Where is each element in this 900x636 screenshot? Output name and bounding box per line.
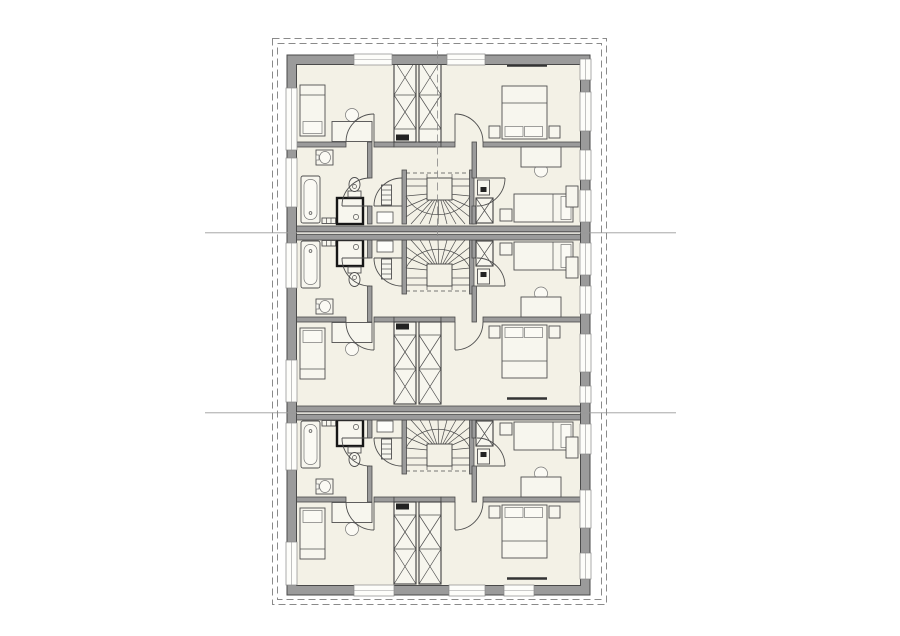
shaft-wall: [394, 142, 441, 147]
sink-tap: [316, 484, 319, 489]
wardrobe: [566, 437, 578, 458]
bathtub-inner: [304, 425, 317, 465]
corridor-wall: [374, 497, 394, 502]
pillow: [505, 328, 523, 338]
shower: [337, 420, 363, 446]
stair-core: [427, 264, 452, 286]
installation-shaft: [394, 322, 416, 404]
shaft-wall: [394, 317, 441, 322]
sink-basin: [320, 301, 331, 313]
corridor-wall: [374, 317, 394, 322]
party-wall: [287, 415, 590, 421]
installation-shaft: [419, 322, 441, 404]
floor-plan-page: [0, 0, 900, 636]
pillow: [505, 508, 523, 518]
bathroom-wall: [368, 466, 373, 502]
corridor-wall: [296, 497, 346, 502]
pillow: [525, 127, 543, 137]
corridor-wall: [441, 497, 455, 502]
shower: [337, 198, 363, 224]
sink-basin: [320, 481, 331, 493]
bathroom-wall: [368, 286, 373, 322]
corridor-wall: [483, 142, 581, 147]
shaft-vent: [396, 324, 409, 330]
stair-wall: [402, 420, 407, 474]
shaft-vent: [396, 135, 409, 141]
corridor-wall: [441, 142, 455, 147]
corridor-wall: [483, 497, 581, 502]
units-layer: [296, 60, 581, 584]
nightstand: [500, 423, 512, 435]
corridor-wall: [296, 317, 346, 322]
pillow: [303, 511, 322, 523]
bedroom-wall: [472, 466, 477, 502]
desk: [521, 297, 561, 317]
wardrobe: [566, 257, 578, 278]
nightstand: [489, 126, 500, 138]
installation-shaft: [394, 60, 416, 142]
pillow: [505, 127, 523, 137]
sink-basin: [320, 152, 331, 164]
stair-wall: [402, 240, 407, 294]
nightstand: [500, 243, 512, 255]
nightstand: [549, 326, 560, 338]
bathtub-inner: [304, 180, 317, 220]
party-wall: [287, 226, 590, 232]
pillow: [303, 122, 322, 134]
stair-wall: [402, 170, 407, 224]
nightstand: [489, 326, 500, 338]
sink-tap: [316, 155, 319, 160]
party-wall: [287, 235, 590, 241]
bathroom-wall: [368, 240, 373, 258]
bedroom-wall: [472, 286, 477, 322]
shower: [337, 240, 363, 266]
pillow: [525, 508, 543, 518]
floor-plan-canvas: [0, 0, 900, 636]
corridor-wall: [483, 317, 581, 322]
pillow: [525, 328, 543, 338]
nightstand: [549, 506, 560, 518]
nightstand: [500, 209, 512, 221]
nightstand: [549, 126, 560, 138]
shelf: [377, 241, 393, 252]
nightstand: [489, 506, 500, 518]
shelf: [377, 421, 393, 432]
bathroom-wall: [368, 206, 373, 224]
party-wall: [287, 406, 590, 412]
bedroom-wall: [472, 142, 477, 178]
desk: [521, 147, 561, 167]
duct-vent: [481, 272, 487, 277]
bathtub-inner: [304, 245, 317, 285]
bathroom-wall: [368, 142, 373, 178]
installation-shaft: [394, 502, 416, 584]
desk: [521, 477, 561, 497]
wardrobe: [566, 186, 578, 207]
corridor-wall: [296, 142, 346, 147]
shaft-wall: [394, 497, 441, 502]
corridor-wall: [374, 142, 394, 147]
duct-vent: [481, 452, 487, 457]
corridor-wall: [441, 317, 455, 322]
shelf: [377, 212, 393, 223]
duct-vent: [481, 187, 487, 192]
installation-shaft: [419, 502, 441, 584]
stair-core: [427, 178, 452, 200]
stair-core: [427, 444, 452, 466]
bathroom-wall: [368, 420, 373, 438]
pillow: [303, 331, 322, 343]
sink-tap: [316, 304, 319, 309]
shaft-vent: [396, 504, 409, 510]
